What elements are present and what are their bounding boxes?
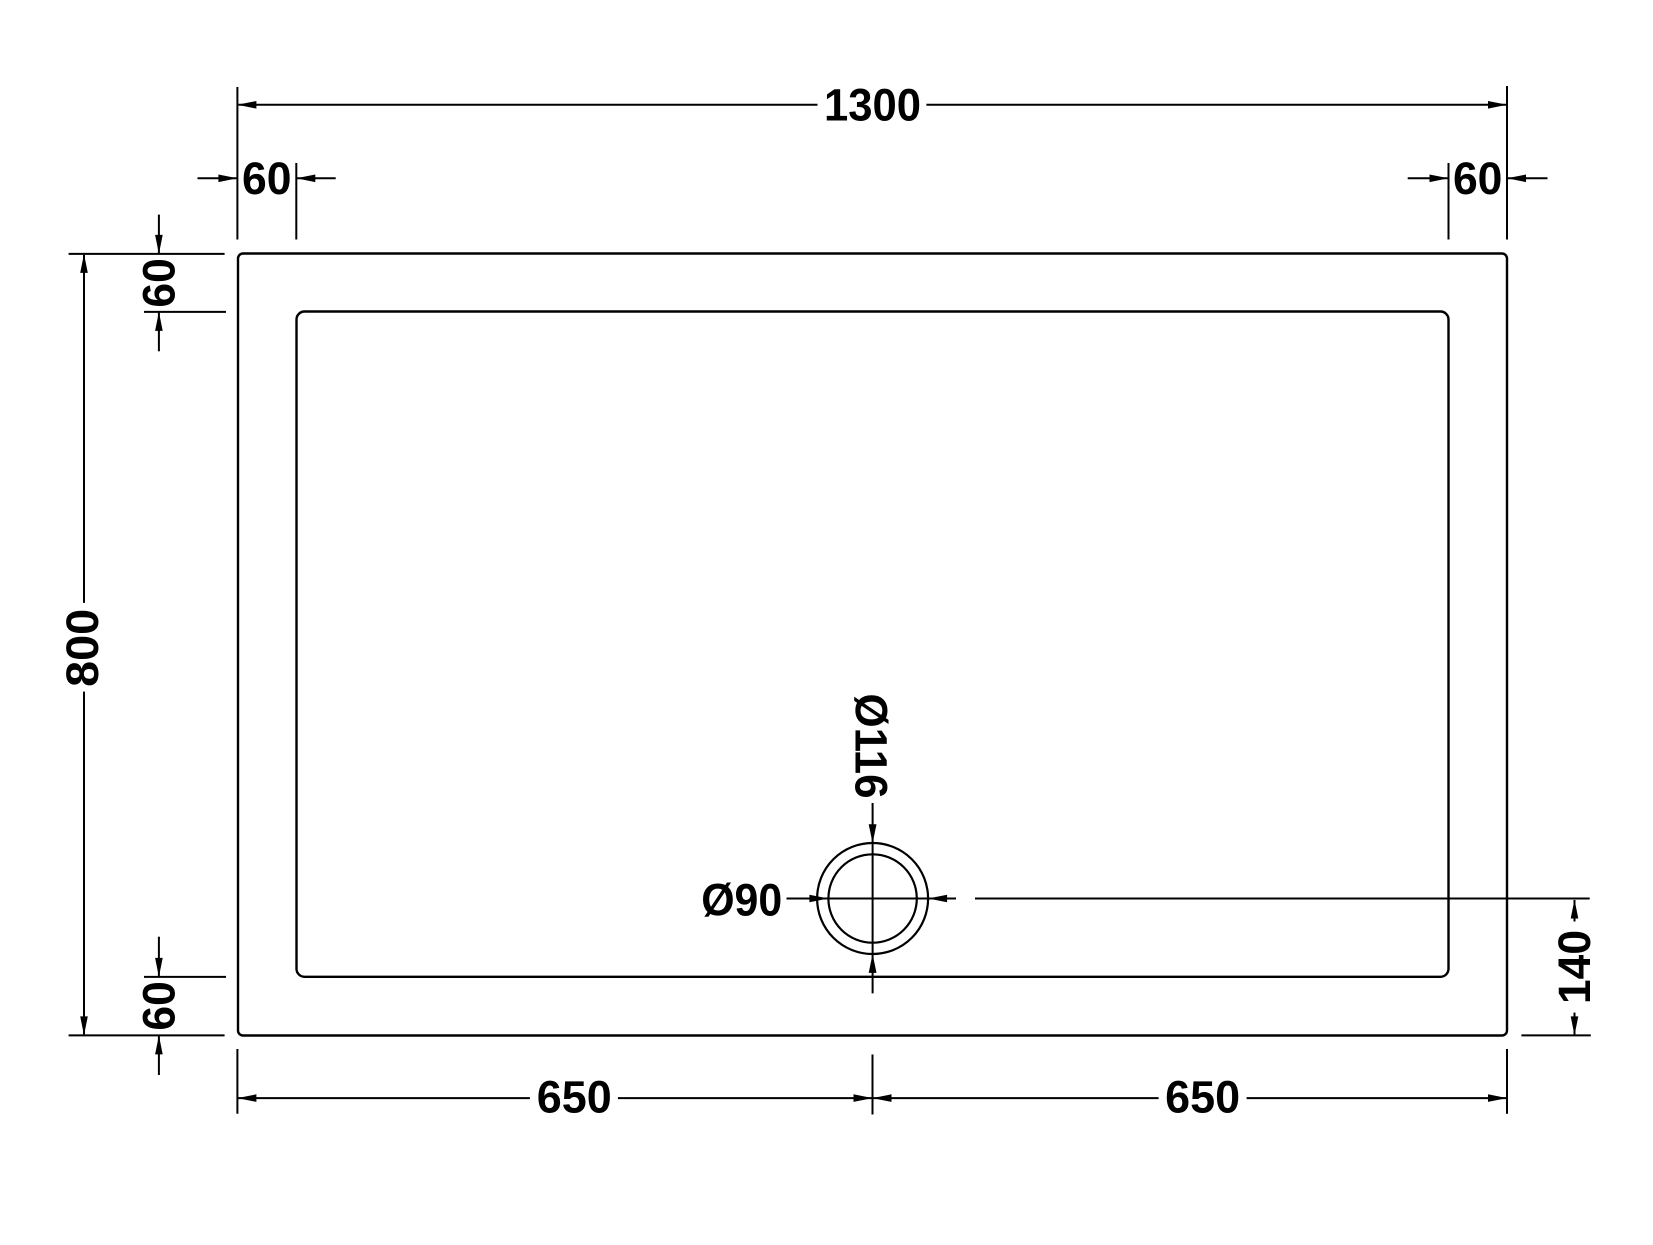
- svg-text:650: 650: [1165, 1072, 1240, 1123]
- svg-text:60: 60: [242, 153, 292, 204]
- svg-text:60: 60: [133, 981, 184, 1031]
- svg-text:800: 800: [57, 609, 108, 687]
- svg-text:60: 60: [1453, 153, 1503, 204]
- svg-text:140: 140: [1549, 930, 1600, 1004]
- svg-text:650: 650: [537, 1072, 612, 1123]
- svg-text:Ø116: Ø116: [846, 694, 897, 799]
- svg-text:Ø90: Ø90: [701, 875, 782, 926]
- svg-text:1300: 1300: [824, 79, 921, 130]
- svg-text:60: 60: [133, 258, 184, 308]
